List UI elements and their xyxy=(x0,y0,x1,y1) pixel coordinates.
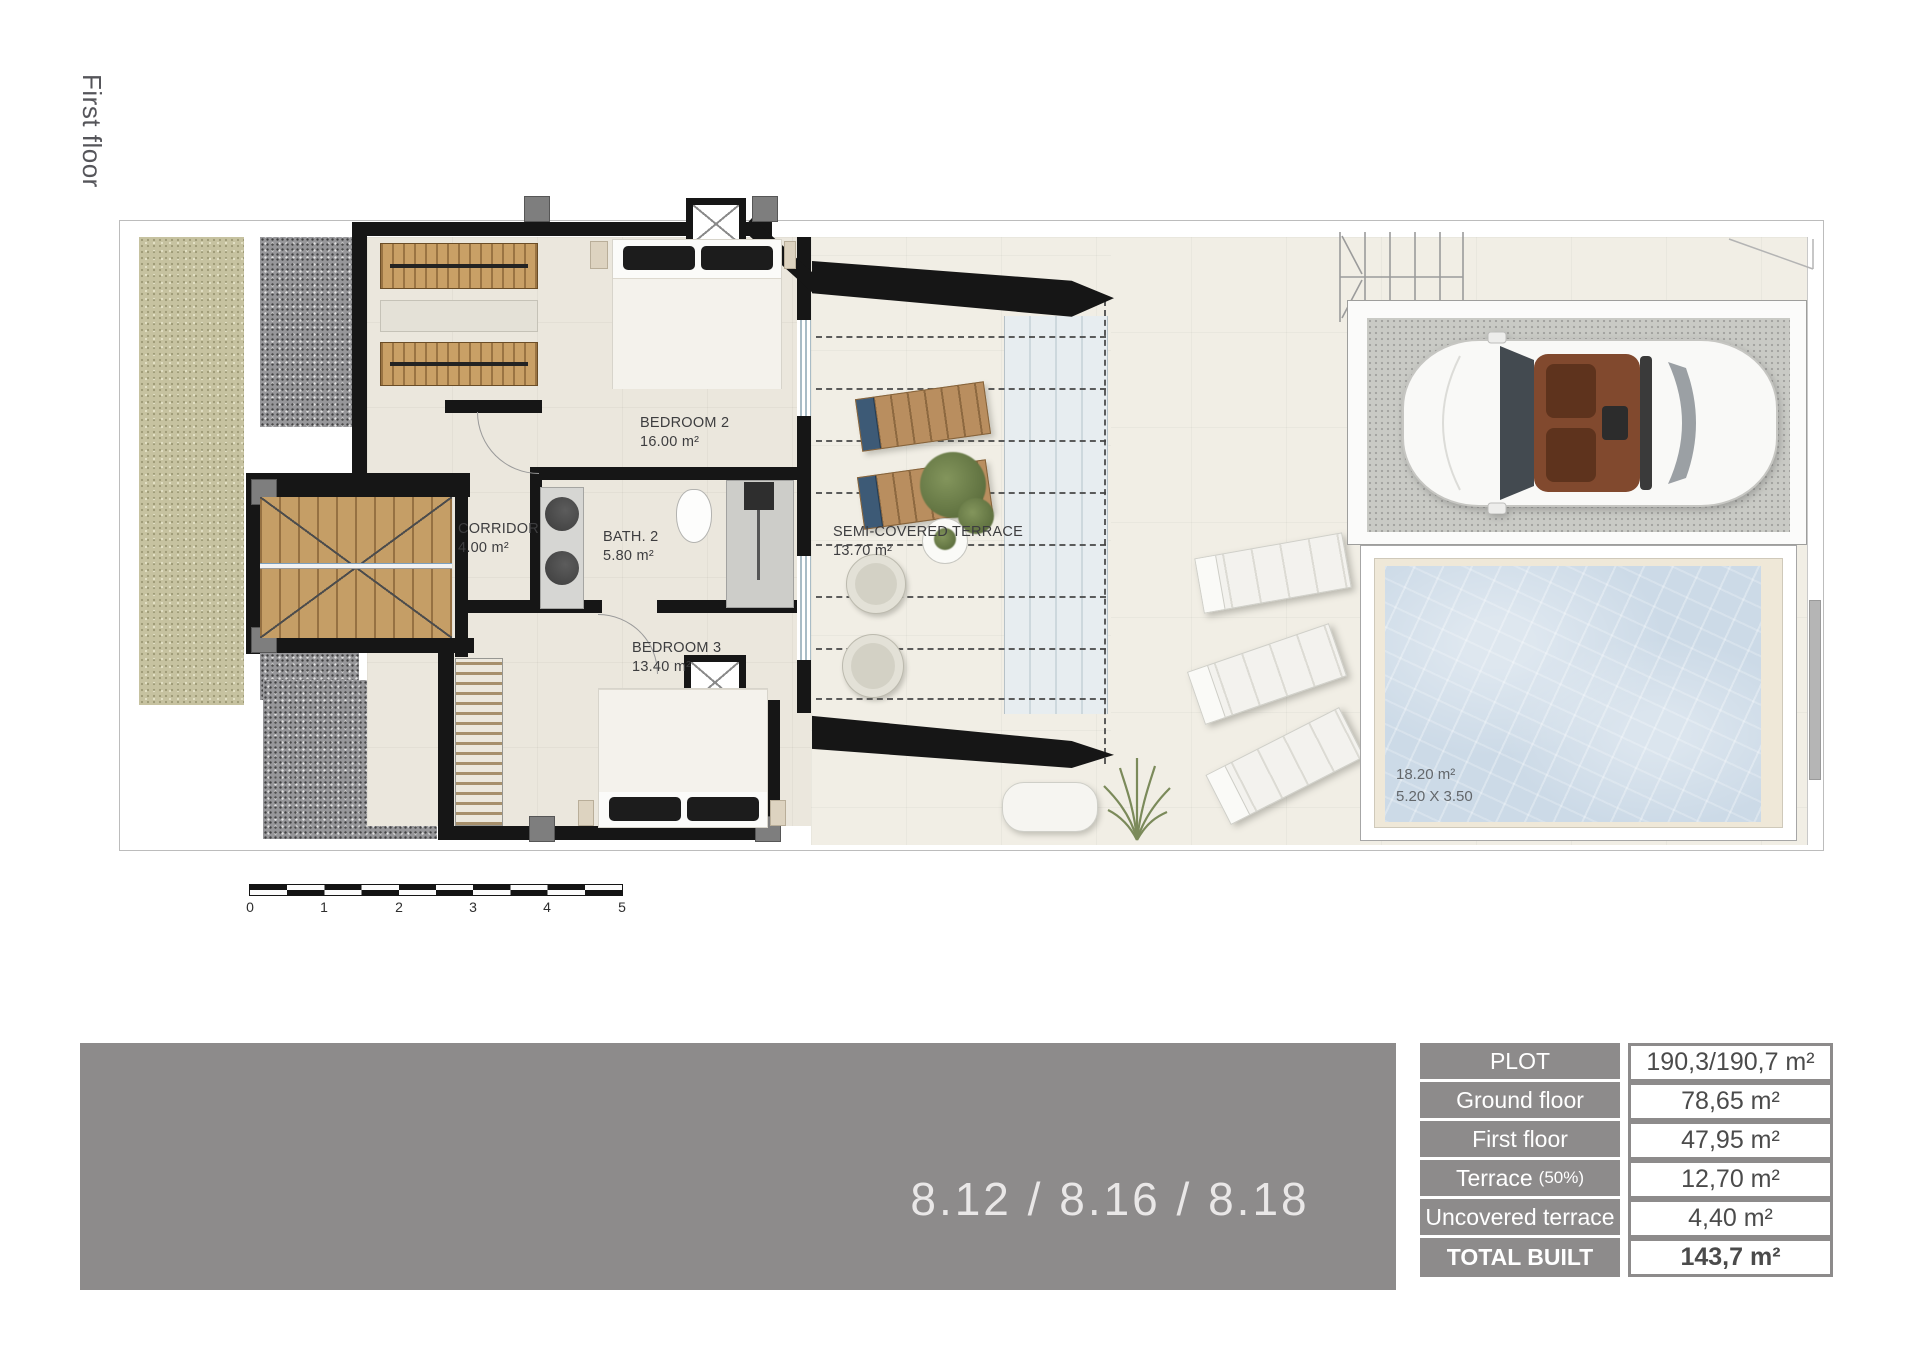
row-label: PLOT xyxy=(1420,1043,1620,1082)
duvet xyxy=(613,278,781,389)
row-label: TOTAL BUILT xyxy=(1420,1238,1620,1277)
table-row: Ground floor 78,65 m² xyxy=(1420,1082,1833,1121)
duvet xyxy=(599,689,767,792)
wall xyxy=(352,400,367,475)
row-label: Terrace (50%) xyxy=(1420,1160,1620,1199)
row-label: First floor xyxy=(1420,1121,1620,1160)
radiator-closet xyxy=(455,658,503,826)
bed-bedroom2 xyxy=(612,239,782,389)
wall xyxy=(438,826,780,840)
shower-stem xyxy=(757,510,760,580)
table-row: Terrace (50%) 12,70 m² xyxy=(1420,1160,1833,1199)
scale-tick-4: 4 xyxy=(540,899,554,915)
row-value: 4,40 m² xyxy=(1631,1202,1830,1235)
shower-head xyxy=(744,482,774,510)
wardrobe xyxy=(380,243,538,289)
pergola-dashed-line xyxy=(816,336,1106,338)
semi-covered-terrace-label: SEMI-COVERED TERRACE 13.70 m² xyxy=(833,523,1023,561)
wall xyxy=(246,473,470,497)
scale-tick-2: 2 xyxy=(392,899,406,915)
window xyxy=(797,320,811,416)
areas-table: PLOT 190,3/190,7 m² Ground floor 78,65 m… xyxy=(1420,1043,1833,1277)
pool-area: 18.20 m² xyxy=(1396,764,1473,786)
sink-basin xyxy=(545,497,579,531)
wicker-chair xyxy=(846,554,906,614)
scale-bar-bottom xyxy=(250,890,622,895)
wardrobe-shelf xyxy=(380,300,538,332)
outdoor-sofa xyxy=(1002,782,1098,832)
floor-plan-page: First floor xyxy=(0,0,1920,1357)
pillow xyxy=(701,246,773,270)
table-row: First floor 47,95 m² xyxy=(1420,1121,1833,1160)
pillow xyxy=(609,797,681,821)
row-label-suffix: (50%) xyxy=(1539,1168,1584,1188)
bedroom3-label: BEDROOM 3 13.40 m² xyxy=(632,639,721,677)
row-value: 47,95 m² xyxy=(1631,1124,1830,1157)
pillow xyxy=(687,797,759,821)
post xyxy=(529,816,555,842)
grass-plant xyxy=(1100,752,1174,842)
wall xyxy=(438,650,454,840)
pergola-dashed-line xyxy=(816,698,1106,700)
sink-basin xyxy=(545,551,579,585)
corridor-label: CORRIDOR 4.00 m² xyxy=(458,520,539,558)
bath2-label: BATH. 2 5.80 m² xyxy=(603,528,658,566)
table-row: PLOT 190,3/190,7 m² xyxy=(1420,1043,1833,1082)
scale-bar xyxy=(249,884,623,896)
garden-strip xyxy=(139,237,244,705)
nightstand xyxy=(578,800,594,826)
post xyxy=(524,196,550,222)
scale-tick-0: 0 xyxy=(243,899,257,915)
nightstand xyxy=(590,241,608,269)
row-value: 143,7 m² xyxy=(1631,1241,1830,1274)
wall xyxy=(530,467,797,480)
unit-numbers: 8.12 / 8.16 / 8.18 xyxy=(900,1172,1320,1226)
scale-tick-1: 1 xyxy=(317,899,331,915)
unit-banner xyxy=(80,1043,1396,1290)
row-value: 78,65 m² xyxy=(1631,1085,1830,1118)
wall xyxy=(352,222,367,414)
wardrobe xyxy=(380,342,538,386)
pillow xyxy=(623,246,695,270)
nightstand xyxy=(784,241,796,269)
table-row-total: TOTAL BUILT 143,7 m² xyxy=(1420,1238,1833,1277)
page-title: First floor xyxy=(76,74,107,188)
terrace-glass-screen xyxy=(1004,316,1108,714)
post xyxy=(752,196,778,222)
pool-dimensions: 5.20 X 3.50 xyxy=(1396,786,1473,808)
wicker-chair xyxy=(842,634,904,698)
row-label: Ground floor xyxy=(1420,1082,1620,1121)
gravel-area-top xyxy=(260,237,359,427)
pergola-dashed-line xyxy=(816,440,1106,442)
window xyxy=(797,556,811,660)
nightstand xyxy=(770,800,786,826)
scale-tick-3: 3 xyxy=(466,899,480,915)
toilet xyxy=(676,489,712,543)
pergola-dashed-edge xyxy=(1104,300,1106,764)
pool-label: 18.20 m² 5.20 X 3.50 xyxy=(1396,764,1473,808)
car-top-view xyxy=(1400,332,1780,514)
bedroom2-label: BEDROOM 2 16.00 m² xyxy=(640,414,729,452)
stairs-center-rail xyxy=(260,563,452,569)
table-row: Uncovered terrace 4,40 m² xyxy=(1420,1199,1833,1238)
row-value: 12,70 m² xyxy=(1631,1163,1830,1196)
bed-bedroom3 xyxy=(598,688,768,828)
roof-corner-lines xyxy=(1725,237,1817,273)
row-label: Uncovered terrace xyxy=(1420,1199,1620,1238)
side-gate xyxy=(1809,600,1821,780)
scale-tick-5: 5 xyxy=(615,899,629,915)
row-value: 190,3/190,7 m² xyxy=(1631,1046,1830,1079)
